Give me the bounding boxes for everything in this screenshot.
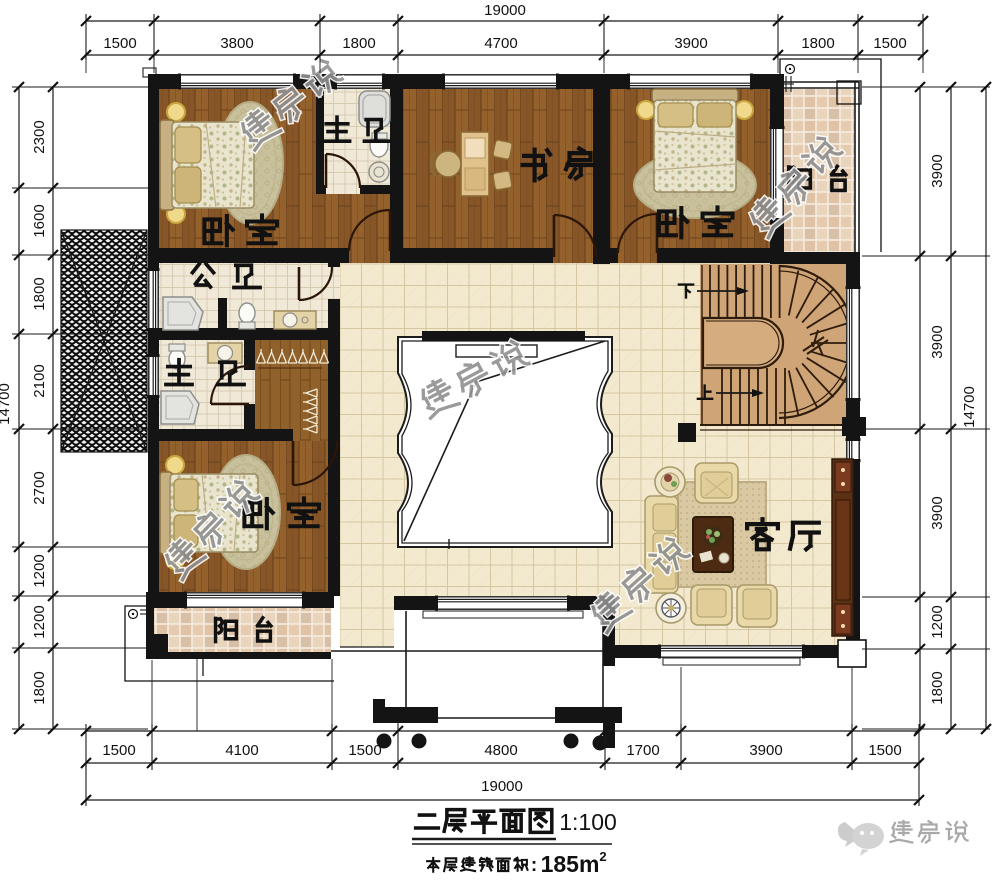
svg-text:185m: 185m xyxy=(541,851,600,877)
svg-text:1500: 1500 xyxy=(868,742,901,759)
svg-text:1800: 1800 xyxy=(31,671,48,704)
svg-text:1200: 1200 xyxy=(929,605,946,638)
svg-text:19000: 19000 xyxy=(484,2,526,19)
svg-text:1500: 1500 xyxy=(102,742,135,759)
svg-text:3900: 3900 xyxy=(749,742,782,759)
svg-text:4100: 4100 xyxy=(225,742,258,759)
svg-text:1800: 1800 xyxy=(929,671,946,704)
svg-text:3900: 3900 xyxy=(674,35,707,52)
svg-text:1800: 1800 xyxy=(31,277,48,310)
svg-text:2: 2 xyxy=(599,849,606,864)
svg-text:3900: 3900 xyxy=(929,154,946,187)
svg-text:1500: 1500 xyxy=(873,35,906,52)
svg-text:3900: 3900 xyxy=(929,325,946,358)
svg-text:1500: 1500 xyxy=(348,742,381,759)
svg-text:1:100: 1:100 xyxy=(559,809,617,835)
svg-text:3800: 3800 xyxy=(220,35,253,52)
svg-text:1800: 1800 xyxy=(801,35,834,52)
svg-text:1700: 1700 xyxy=(626,742,659,759)
svg-text:2100: 2100 xyxy=(31,364,48,397)
svg-text:1600: 1600 xyxy=(31,204,48,237)
svg-text:1500: 1500 xyxy=(103,35,136,52)
svg-text:4800: 4800 xyxy=(484,742,517,759)
svg-text:1800: 1800 xyxy=(342,35,375,52)
svg-text:4700: 4700 xyxy=(484,35,517,52)
svg-text:2700: 2700 xyxy=(31,471,48,504)
svg-text:2300: 2300 xyxy=(31,120,48,153)
svg-text:19000: 19000 xyxy=(481,778,523,795)
svg-text:3900: 3900 xyxy=(929,496,946,529)
svg-text:1200: 1200 xyxy=(31,605,48,638)
svg-text:1200: 1200 xyxy=(31,554,48,587)
svg-text::: : xyxy=(531,855,537,876)
svg-text:14700: 14700 xyxy=(961,386,978,428)
svg-text:14700: 14700 xyxy=(0,383,13,425)
